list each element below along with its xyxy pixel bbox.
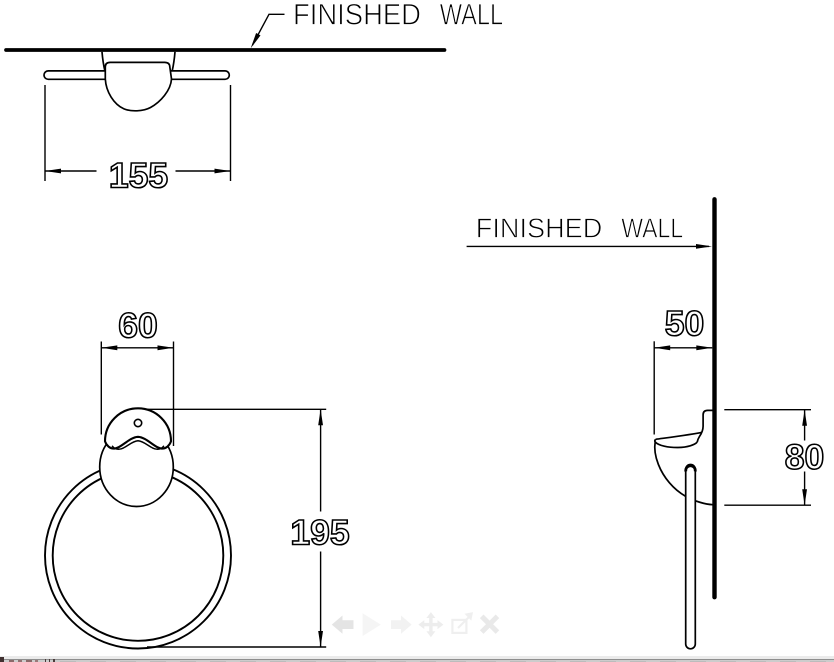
svg-text:FINISHED: FINISHED bbox=[293, 0, 421, 32]
svg-text:WALL: WALL bbox=[440, 0, 504, 32]
svg-text:195: 195 bbox=[290, 512, 349, 552]
svg-text:WALL: WALL bbox=[621, 213, 683, 244]
svg-text:155: 155 bbox=[109, 156, 168, 196]
svg-text:50: 50 bbox=[665, 303, 705, 343]
svg-text:80: 80 bbox=[785, 437, 825, 477]
svg-text:FINISHED: FINISHED bbox=[476, 213, 603, 244]
svg-text:60: 60 bbox=[118, 306, 158, 346]
